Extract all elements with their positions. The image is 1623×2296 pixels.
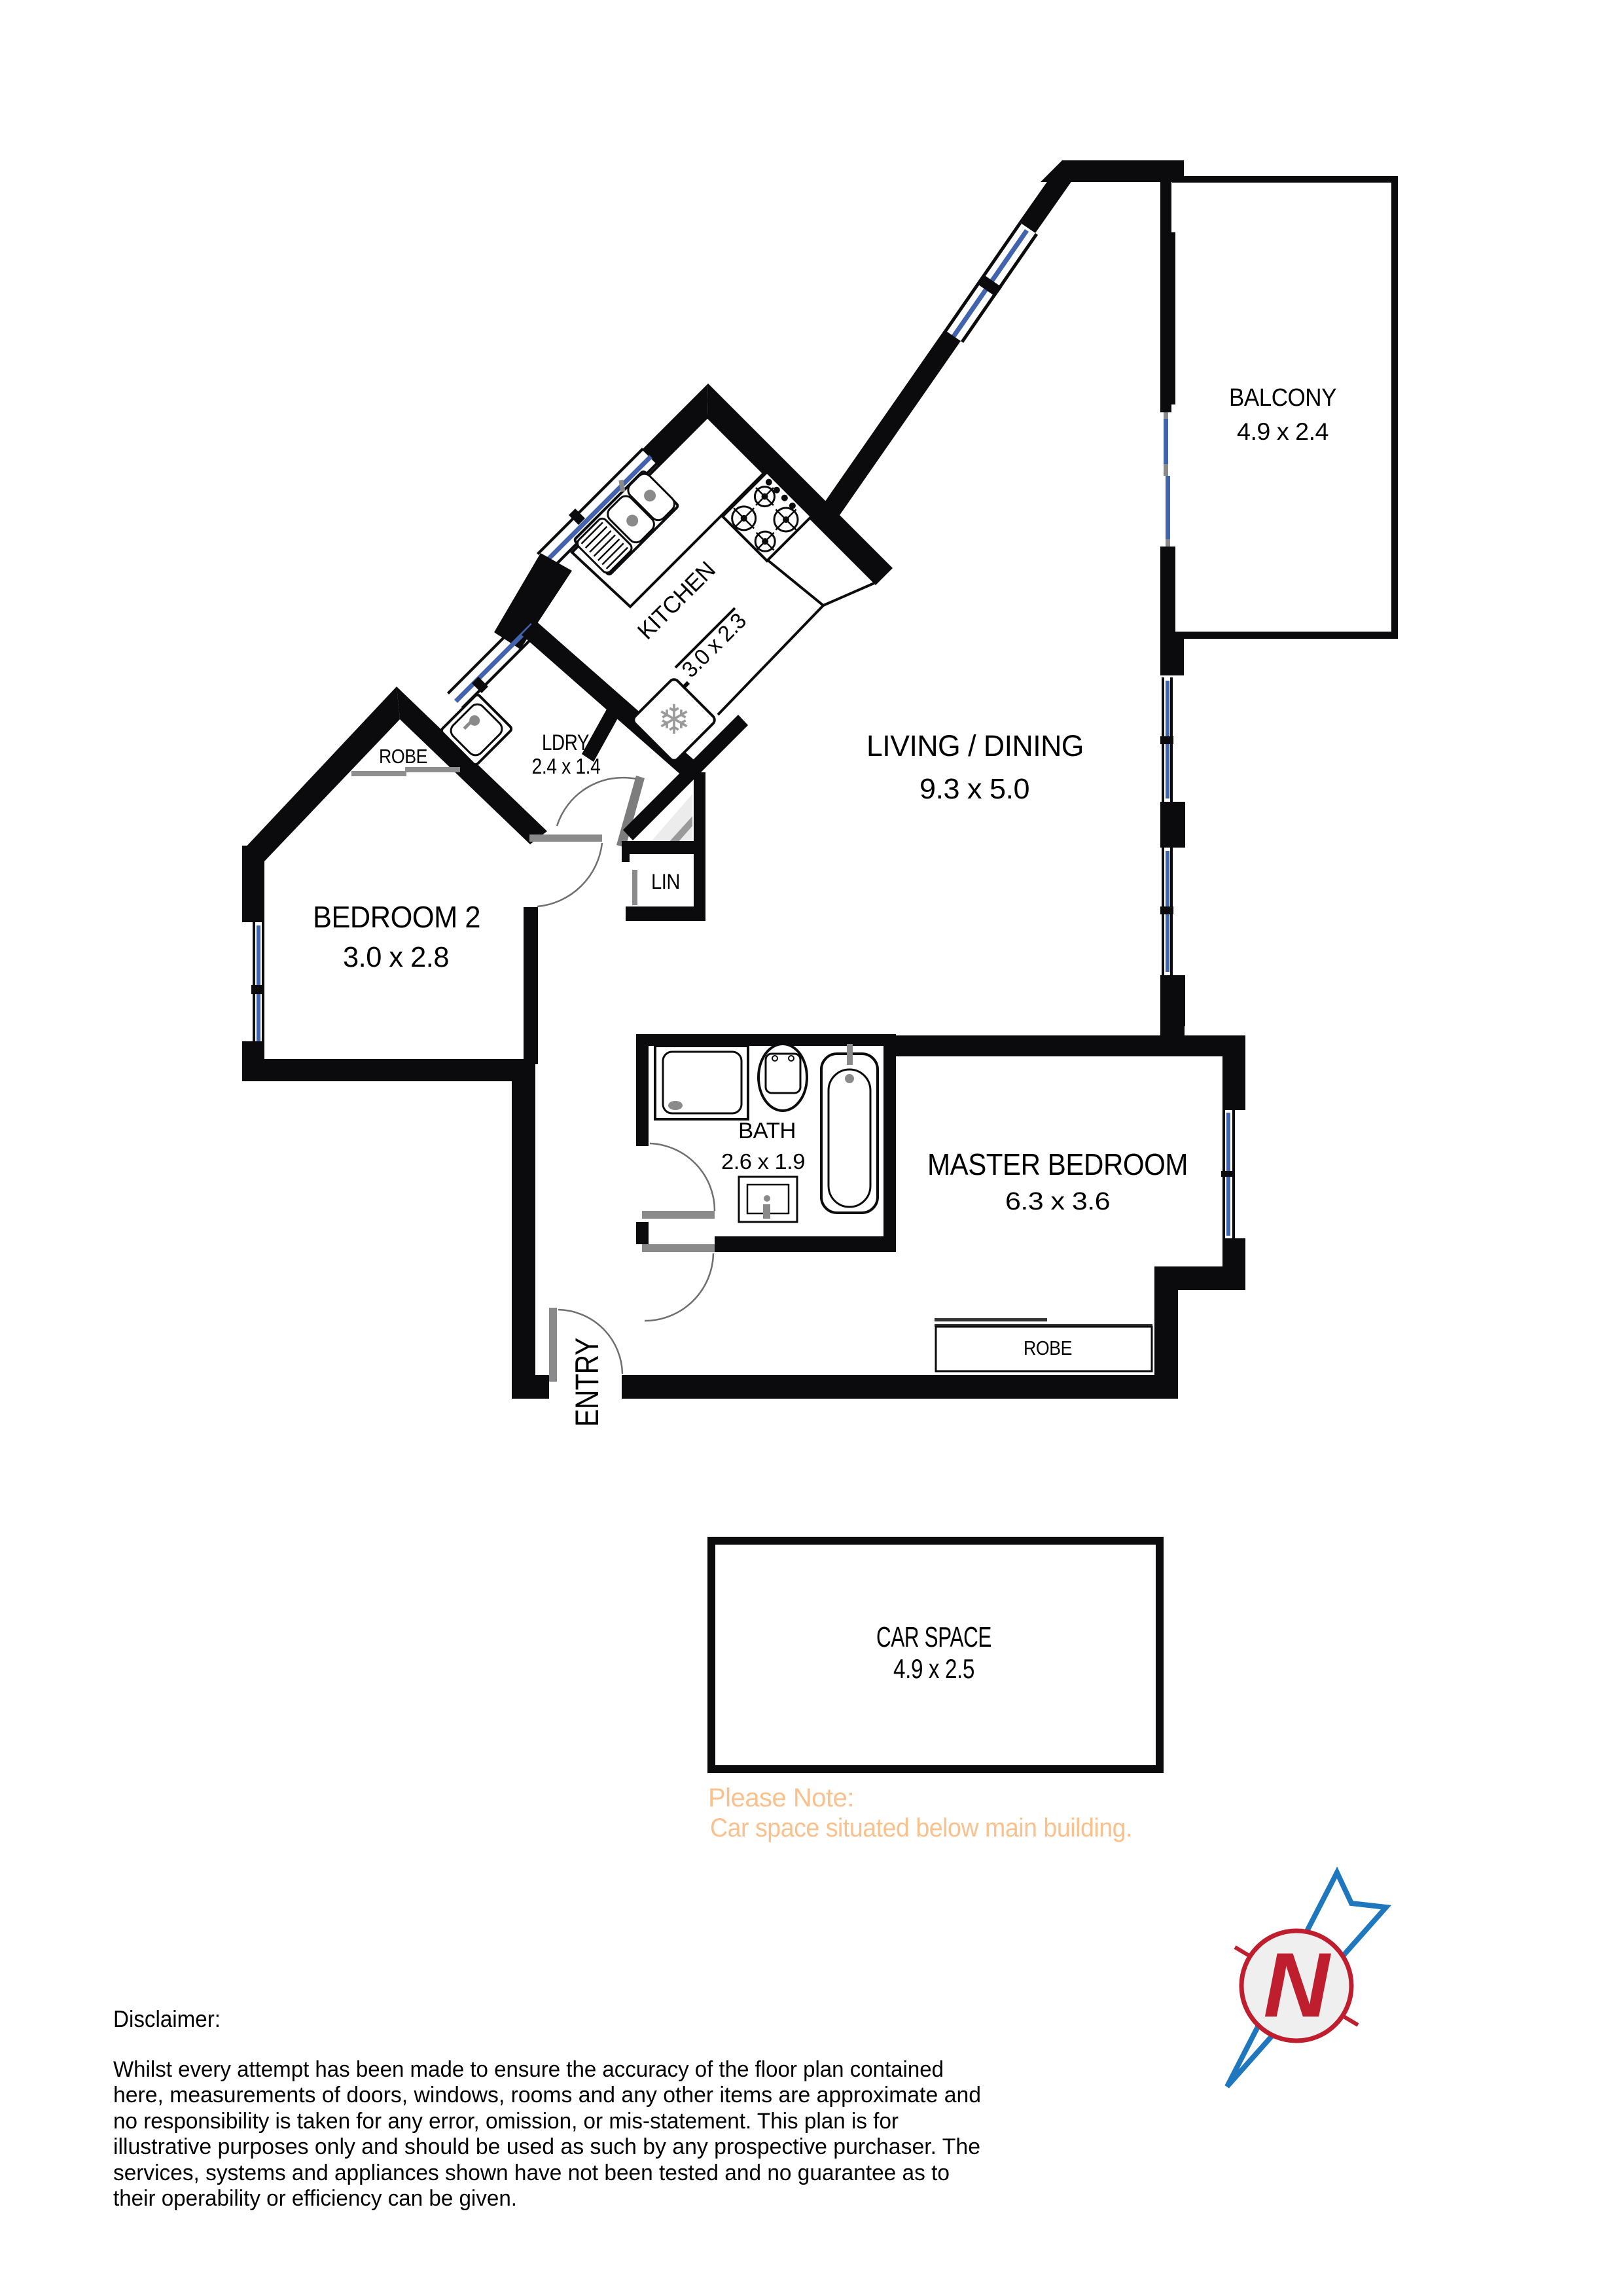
svg-text:LDRY: LDRY	[542, 730, 589, 755]
svg-text:ROBE: ROBE	[1024, 1336, 1072, 1359]
svg-text:CAR SPACE: CAR SPACE	[876, 1621, 991, 1653]
svg-text:BEDROOM 2: BEDROOM 2	[313, 900, 480, 934]
svg-text:2.4 x 1.4: 2.4 x 1.4	[532, 754, 601, 778]
svg-text:Whilst every attempt has been: Whilst every attempt has been made to en…	[113, 2057, 987, 2211]
svg-text:Car space situated below main: Car space situated below main building.	[710, 1814, 1132, 1842]
svg-text:❄: ❄	[657, 698, 691, 743]
svg-text:LIVING / DINING: LIVING / DINING	[866, 729, 1084, 762]
svg-text:Please Note:: Please Note:	[708, 1784, 854, 1812]
svg-text:2.6 x 1.9: 2.6 x 1.9	[721, 1149, 805, 1174]
svg-text:3.0 x 2.8: 3.0 x 2.8	[343, 941, 449, 973]
svg-text:ROBE: ROBE	[379, 745, 427, 768]
svg-text:Disclaimer:: Disclaimer:	[113, 2005, 221, 2032]
svg-text:BALCONY: BALCONY	[1229, 384, 1336, 412]
svg-text:3.0 x 2.3: 3.0 x 2.3	[677, 609, 751, 683]
svg-text:MASTER BEDROOM: MASTER BEDROOM	[927, 1147, 1188, 1181]
svg-text:BATH: BATH	[738, 1119, 796, 1143]
svg-text:ENTRY: ENTRY	[569, 1338, 605, 1427]
svg-text:LIN: LIN	[651, 870, 680, 893]
svg-text:6.3 x 3.6: 6.3 x 3.6	[1005, 1188, 1110, 1215]
svg-text:N: N	[1263, 1933, 1331, 2036]
svg-text:9.3 x 5.0: 9.3 x 5.0	[919, 773, 1029, 805]
svg-text:4.9 x 2.4: 4.9 x 2.4	[1237, 418, 1329, 445]
svg-text:4.9 x 2.5: 4.9 x 2.5	[893, 1653, 974, 1684]
